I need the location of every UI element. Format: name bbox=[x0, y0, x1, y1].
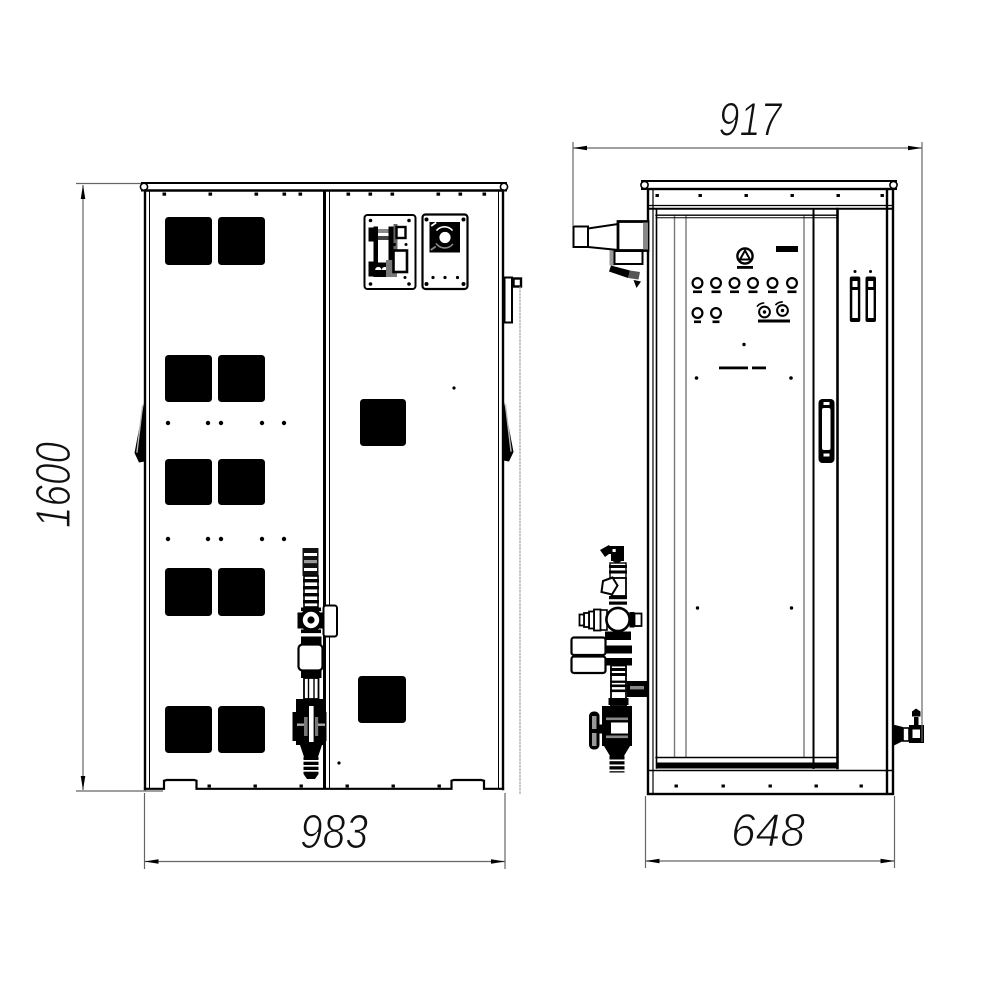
svg-text:1600: 1600 bbox=[27, 442, 81, 528]
svg-text:648: 648 bbox=[731, 804, 805, 856]
svg-text:917: 917 bbox=[719, 93, 783, 146]
svg-text:983: 983 bbox=[300, 806, 368, 859]
